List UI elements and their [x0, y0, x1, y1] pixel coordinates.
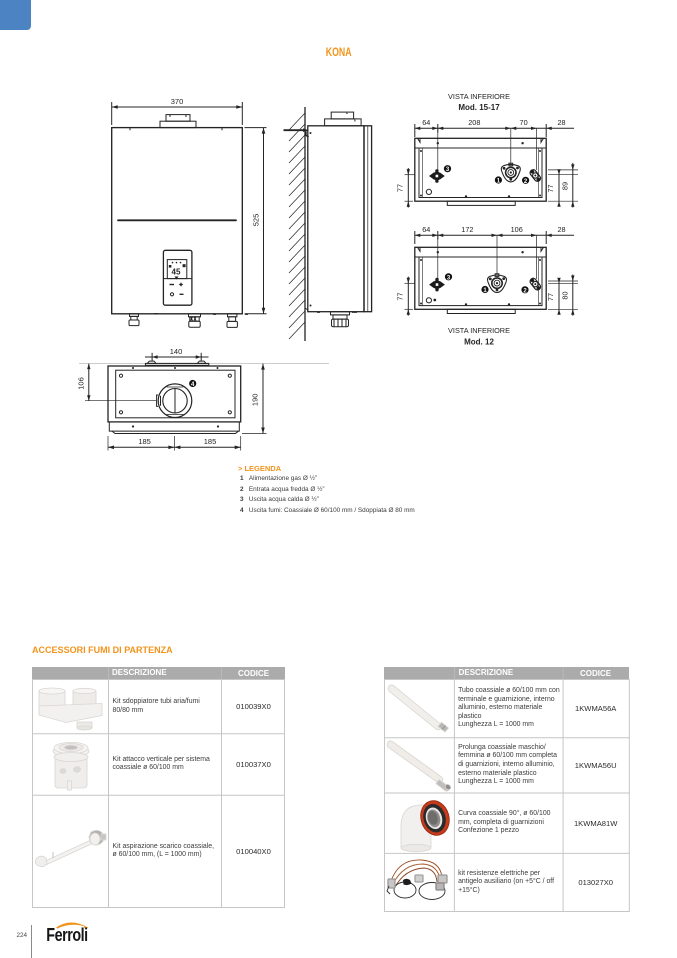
- svg-text:77: 77: [396, 184, 405, 192]
- svg-text:77: 77: [546, 184, 555, 192]
- svg-text:190: 190: [251, 394, 260, 407]
- svg-text:525: 525: [252, 214, 261, 227]
- svg-text:80: 80: [560, 291, 569, 299]
- svg-text:VISTA INFERIORE: VISTA INFERIORE: [448, 326, 510, 335]
- svg-text:140: 140: [170, 347, 183, 356]
- svg-text:28: 28: [557, 118, 565, 127]
- svg-text:77: 77: [546, 293, 555, 301]
- svg-text:70: 70: [520, 118, 528, 127]
- svg-text:VISTA INFERIORE: VISTA INFERIORE: [448, 92, 510, 101]
- svg-text:45: 45: [172, 268, 181, 277]
- svg-text:64: 64: [422, 118, 430, 127]
- svg-text:106: 106: [511, 225, 523, 234]
- svg-text:185: 185: [204, 437, 217, 446]
- svg-text:Mod. 12: Mod. 12: [464, 338, 494, 347]
- svg-text:28: 28: [557, 225, 565, 234]
- svg-text:Mod. 15-17: Mod. 15-17: [458, 103, 500, 112]
- svg-text:185: 185: [138, 437, 151, 446]
- svg-text:89: 89: [560, 182, 569, 190]
- svg-text:106: 106: [77, 377, 86, 390]
- svg-text:77: 77: [396, 292, 405, 300]
- svg-text:208: 208: [468, 118, 480, 127]
- svg-text:172: 172: [461, 225, 473, 234]
- svg-text:64: 64: [422, 225, 430, 234]
- svg-text:Ferroli: Ferroli: [46, 924, 87, 945]
- svg-text:370: 370: [171, 97, 184, 106]
